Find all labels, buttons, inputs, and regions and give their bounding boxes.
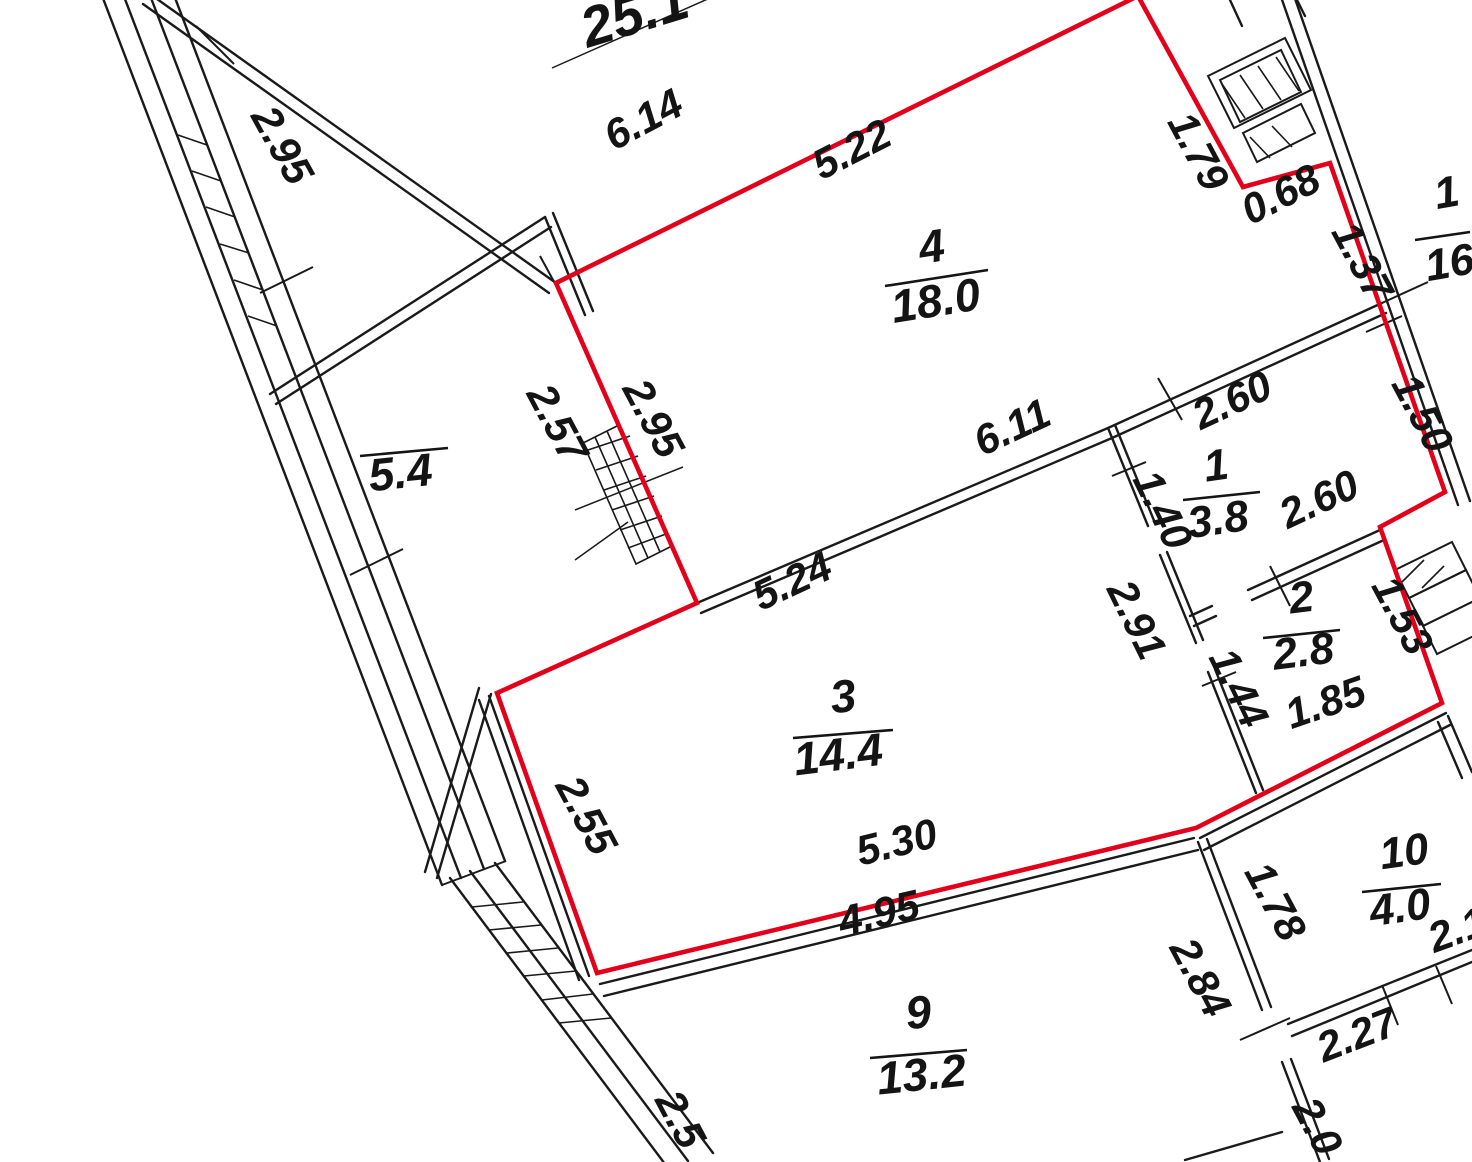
dim-6-11: 6.11 — [966, 389, 1057, 465]
room-label-9-area: 13.2 — [874, 1044, 969, 1105]
floor-plan: 25.1 6.14 5.22 1.79 0.68 1.37 4 18.0 1 1… — [0, 0, 1472, 1162]
dim-2-95-door: 2.95 — [613, 370, 694, 466]
balcony-bottom-wall — [425, 688, 491, 878]
room-label-16-area: 16 — [1421, 234, 1472, 291]
room-label-1-number: 1 — [1200, 440, 1231, 492]
dim-4-95: 4.95 — [833, 881, 925, 946]
wall-bottom-right-stub — [1185, 1132, 1282, 1160]
balcony-right-stub — [545, 213, 593, 315]
room-label-3-area: 14.4 — [790, 723, 885, 786]
room-label-9-number: 9 — [903, 985, 934, 1039]
room-label-10-area: 4.0 — [1365, 879, 1434, 936]
room-label-4-area: 18.0 — [887, 267, 984, 332]
shaft-box-inner — [1220, 50, 1301, 122]
room-label-16-number: 1 — [1430, 166, 1463, 219]
labels: 25.1 6.14 5.22 1.79 0.68 1.37 4 18.0 1 1… — [242, 0, 1472, 1162]
dim-1-44: 1.44 — [1200, 641, 1278, 735]
dim-2-91: 2.91 — [1098, 572, 1177, 667]
dim-1-79: 1.79 — [1159, 104, 1239, 199]
dim-2-95-balcony: 2.95 — [242, 97, 324, 193]
glazing-hatch-lower — [472, 902, 611, 1023]
room-label-2-area: 2.8 — [1269, 623, 1337, 679]
room-label-2-number: 2 — [1285, 572, 1317, 624]
room-label-4-number: 4 — [914, 219, 948, 275]
wall-right-stub — [1438, 716, 1472, 778]
dim-2-0-partial: 2.0 — [1283, 1088, 1352, 1162]
floor-plan-canvas: 25.1 6.14 5.22 1.79 0.68 1.37 4 18.0 1 1… — [0, 0, 1472, 1162]
dim-5-30: 5.30 — [851, 809, 942, 874]
shaft-box-outer — [1208, 38, 1311, 128]
dim-6-14: 6.14 — [596, 79, 690, 159]
dim-2-5-partial: 2.5 — [646, 1081, 716, 1156]
dim-2-55: 2.55 — [546, 767, 627, 863]
dim-2-60-room2: 2.60 — [1271, 460, 1366, 538]
room-label-10-number: 10 — [1376, 824, 1432, 879]
dim-1-37: 1.37 — [1323, 214, 1404, 310]
dim-2-84: 2.84 — [1160, 929, 1240, 1024]
room-label-neighbor-area: 25.1 — [572, 0, 696, 60]
top-edge-stubs — [1230, 0, 1305, 26]
room-label-3-number: 3 — [827, 669, 859, 724]
dim-1-53: 1.53 — [1363, 568, 1443, 662]
room-label-balcony-area: 5.4 — [366, 443, 435, 501]
dim-5-24: 5.24 — [745, 542, 839, 619]
balcony-top-wall — [270, 217, 551, 404]
dim-1-78: 1.78 — [1236, 854, 1316, 949]
dim-2-57: 2.57 — [517, 375, 598, 472]
